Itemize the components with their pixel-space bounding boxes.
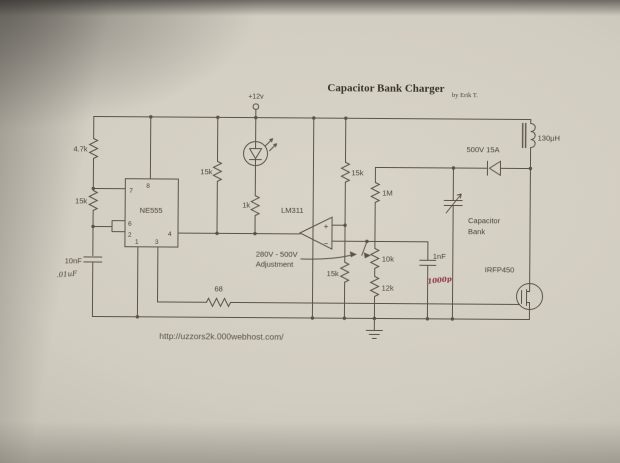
lm311-plus-input: + [324,222,329,231]
capacitor-bank-label-line2: Bank [468,227,485,236]
resistor-1m-feedback [371,167,380,248]
adjustment-arrow [301,251,357,260]
diode-500v [487,161,500,175]
ne555-pin8: 8 [146,183,150,190]
potentiometer-10k-label: 10k [382,255,394,264]
footer-url: http://uzzors2k.000webhost.com/ [159,331,284,342]
ne555-pin4: 4 [168,231,172,238]
resistor-15k-ref-bottom-label: 15k [327,269,339,278]
capacitor-10nf-label: 10nF [65,256,83,265]
photo-of-paper-schematic: Capacitor Bank Charger by Erik T. +12v 4… [0,0,620,463]
lm311-minus-input: − [324,239,329,248]
ne555-pin6: 6 [128,221,132,228]
mosfet-irfp450 [516,283,542,319]
resistor-15k-ref-bottom [340,262,348,318]
lm311-label: LM311 [281,206,303,215]
ne555-pin2: 2 [128,232,132,239]
capacitor-1nf-label: 1nF [433,252,446,261]
mosfet-label: IRFP450 [485,265,515,274]
potentiometer-10k [362,241,379,276]
resistor-4k7 [89,116,98,190]
adjustment-note-line2: Adjustment [256,260,294,269]
ne555-ic [92,116,300,317]
capacitor-1nf-handwritten-note: 1000p [427,274,452,286]
schematic-title: Capacitor Bank Charger [327,82,444,95]
led-indicator [243,118,276,166]
resistor-15k-ref-top-label: 15k [351,168,363,177]
resistor-15k-ref-top [341,118,350,262]
schematic: Capacitor Bank Charger by Erik T. +12v 4… [0,0,620,463]
resistor-12k-label: 12k [382,284,394,293]
resistor-15k-timing-label: 15k [75,196,87,205]
resistor-68-label: 68 [214,284,222,293]
supply-terminal [253,104,259,118]
capacitor-bank-label-line1: Capacitor [468,216,501,225]
resistor-15k-pullup [213,117,222,233]
capacitor-10nf [83,257,101,317]
diode-label: 500V 15A [467,145,500,154]
ground-symbol [366,330,382,338]
resistor-4k7-label: 4.7k [73,144,87,153]
capacitor-bank-symbol [443,168,462,319]
resistor-15k-timing [89,190,97,255]
inductor-label: 130µH [538,134,560,143]
adjustment-note-line1: 280V - 500V [256,250,298,259]
schematic-byline: by Erik T. [452,92,478,99]
resistor-1k [251,166,259,234]
ne555-pin1: 1 [135,239,139,246]
ne555-pin3: 3 [155,239,159,246]
resistor-15k-pullup-label: 15k [200,167,212,176]
inductor-130uh [522,119,536,283]
resistor-68-gate [157,298,519,309]
ne555-label: NE555 [140,206,163,215]
lm311-comparator [299,118,428,319]
ne555-pin7: 7 [129,188,133,195]
schematic-canvas: Capacitor Bank Charger by Erik T. +12v 4… [0,0,620,463]
resistor-1m-label: 1M [382,189,392,198]
resistor-1k-label: 1k [242,201,250,210]
capacitor-10nf-handwritten-note: .01uF [56,270,78,280]
supply-label: +12v [248,94,264,101]
